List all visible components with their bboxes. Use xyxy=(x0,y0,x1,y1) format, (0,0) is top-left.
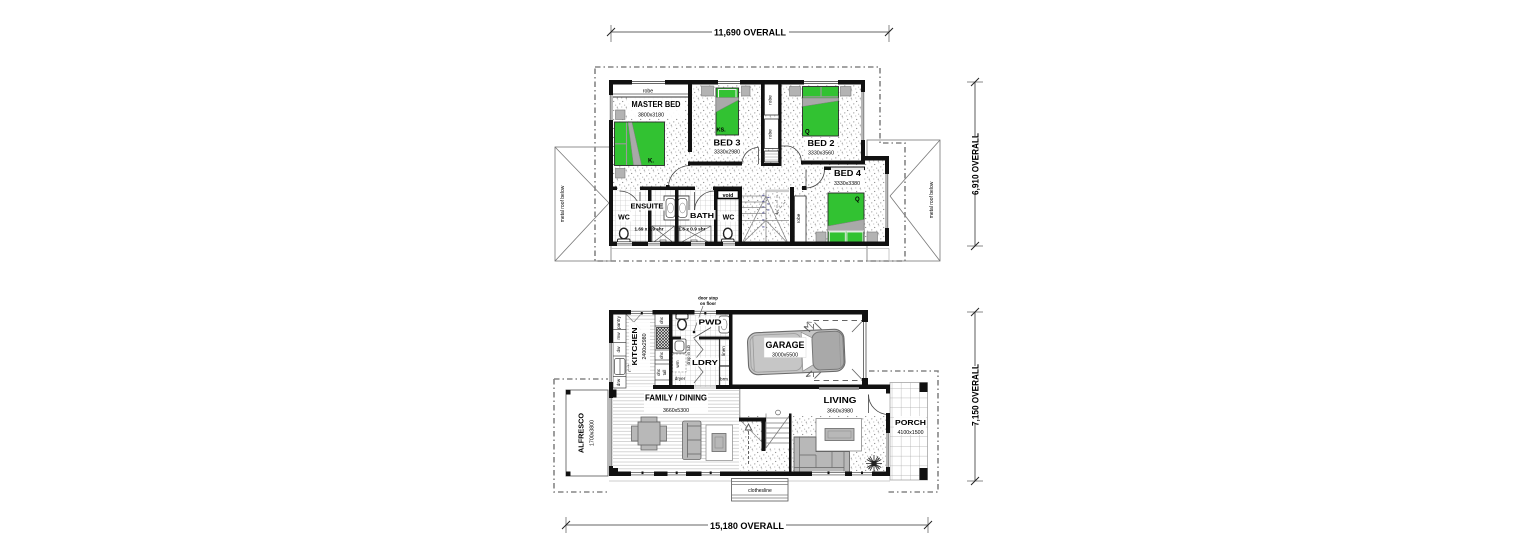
svg-text:3660x3980: 3660x3980 xyxy=(827,409,853,415)
svg-text:void: void xyxy=(723,193,734,199)
svg-text:Q: Q xyxy=(805,130,810,136)
svg-text:dw: dw xyxy=(616,346,621,353)
svg-text:drw: drw xyxy=(616,378,621,386)
svg-text:clothesline: clothesline xyxy=(748,488,772,494)
svg-text:KITCHEN: KITCHEN xyxy=(630,328,639,366)
svg-text:ohc: ohc xyxy=(659,351,664,359)
svg-text:3800x3180: 3800x3180 xyxy=(638,113,664,119)
svg-text:drop in tub: drop in tub xyxy=(686,344,691,364)
svg-text:BATH: BATH xyxy=(690,213,714,220)
svg-text:ENSUITE: ENSUITE xyxy=(631,204,664,211)
svg-text:door stop: door stop xyxy=(698,296,718,301)
svg-text:metal roof below: metal roof below xyxy=(929,181,935,218)
svg-text:GARAGE: GARAGE xyxy=(766,340,805,350)
svg-text:1700x3800: 1700x3800 xyxy=(590,420,596,446)
svg-text:KS.: KS. xyxy=(717,128,727,134)
svg-text:PWD: PWD xyxy=(699,318,723,327)
svg-text:mw: mw xyxy=(616,332,621,340)
svg-text:ohc: ohc xyxy=(659,316,664,324)
svg-text:3330x3560: 3330x3560 xyxy=(808,151,834,157)
svg-text:pantry: pantry xyxy=(616,315,621,328)
svg-text:robe: robe xyxy=(768,129,774,139)
svg-text:on floor: on floor xyxy=(700,301,716,306)
svg-text:LIVING: LIVING xyxy=(824,395,857,405)
svg-text:11,690 OVERALL: 11,690 OVERALL xyxy=(714,28,786,39)
svg-text:metal roof below: metal roof below xyxy=(560,185,566,222)
svg-text:MASTER BED: MASTER BED xyxy=(632,100,681,109)
svg-text:4100x1500: 4100x1500 xyxy=(898,430,924,436)
svg-text:robe: robe xyxy=(643,89,653,95)
svg-text:linen: linen xyxy=(721,346,726,356)
svg-text:1.69 x 0.9 shr: 1.69 x 0.9 shr xyxy=(635,227,664,232)
svg-text:robe: robe xyxy=(796,213,802,223)
svg-text:3660x5300: 3660x5300 xyxy=(663,408,689,414)
svg-text:BED 3: BED 3 xyxy=(714,139,741,148)
svg-text:ohc: ohc xyxy=(656,368,661,376)
svg-text:Q: Q xyxy=(855,197,860,203)
svg-text:tall: tall xyxy=(662,370,667,376)
svg-text:WC: WC xyxy=(723,215,735,222)
svg-text:PORCH: PORCH xyxy=(895,418,926,427)
svg-text:3330x2980: 3330x2980 xyxy=(714,150,740,156)
svg-text:15,180 OVERALL: 15,180 OVERALL xyxy=(710,521,784,532)
svg-text:7,150 OVERALL: 7,150 OVERALL xyxy=(971,364,982,426)
svg-text:WC: WC xyxy=(618,215,630,222)
svg-text:dryer: dryer xyxy=(675,376,686,381)
svg-text:6,910 OVERALL: 6,910 OVERALL xyxy=(971,133,982,195)
svg-text:2400x2980: 2400x2980 xyxy=(642,334,648,360)
svg-text:3330x3380: 3330x3380 xyxy=(834,181,860,187)
svg-text:wm: wm xyxy=(675,360,680,367)
svg-text:ALFRESCO: ALFRESCO xyxy=(577,413,586,453)
svg-text:brm: brm xyxy=(720,377,728,382)
svg-text:robe: robe xyxy=(768,95,774,105)
svg-text:BED 4: BED 4 xyxy=(834,169,861,178)
svg-text:K.: K. xyxy=(648,159,654,165)
svg-text:1.6 x 0.9 shr: 1.6 x 0.9 shr xyxy=(679,227,706,232)
svg-text:FAMILY / DINING: FAMILY / DINING xyxy=(645,393,707,403)
svg-text:BED 2: BED 2 xyxy=(808,139,835,148)
svg-text:3000x5500: 3000x5500 xyxy=(772,353,798,359)
svg-text:LDRY: LDRY xyxy=(692,358,718,367)
